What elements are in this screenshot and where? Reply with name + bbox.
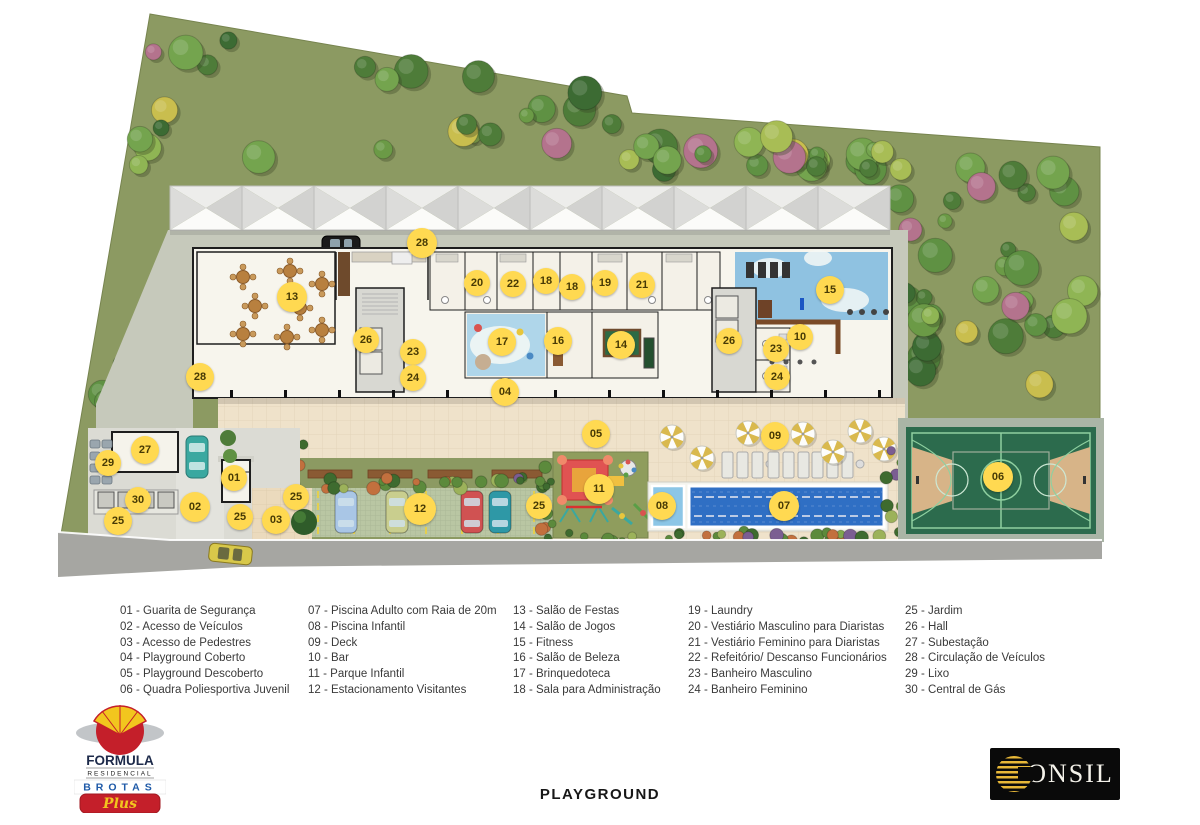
legend-item: 08 - Piscina Infantil [308,620,497,636]
legend-item: 12 - Estacionamento Visitantes [308,683,497,699]
legend-item: 16 - Salão de Beleza [513,651,661,667]
plan-marker-27: 27 [131,436,159,464]
brotas-label: BROTAS [83,782,157,794]
legend: 01 - Guarita de Segurança02 - Acesso de … [0,600,1200,700]
legend-item: 22 - Refeitório/ Descanso Funcionários [688,651,887,667]
plan-marker-25: 25 [227,504,253,530]
plan-marker-05: 05 [582,420,610,448]
plan-marker-24: 24 [400,365,426,391]
plan-marker-30: 30 [125,487,151,513]
consil-c-icon [996,756,1032,792]
plan-marker-08: 08 [648,492,676,520]
legend-item: 17 - Brinquedoteca [513,667,661,683]
consil-wordmark: ONSIL [1027,759,1114,789]
legend-item: 19 - Laundry [688,604,887,620]
legend-item: 10 - Bar [308,651,497,667]
plan-marker-12: 12 [404,493,436,525]
plan-marker-25: 25 [283,484,309,510]
legend-item: 01 - Guarita de Segurança [120,604,289,620]
site-plan: 2813202218181921152623241716142623241004… [0,0,1200,580]
plan-marker-11: 11 [584,474,614,504]
plan-marker-07: 07 [769,491,799,521]
legend-column: 01 - Guarita de Segurança02 - Acesso de … [120,604,289,699]
plan-marker-20: 20 [464,270,490,296]
plan-marker-04: 04 [491,378,519,406]
legend-item: 18 - Sala para Administração [513,683,661,699]
legend-item: 28 - Circulação de Veículos [905,651,1045,667]
plan-marker-19: 19 [592,270,618,296]
legend-item: 23 - Banheiro Masculino [688,667,887,683]
site-plan-page: 2813202218181921152623241716142623241004… [0,0,1200,825]
legend-item: 20 - Vestiário Masculino para Diaristas [688,620,887,636]
plan-marker-13: 13 [277,282,307,312]
plan-marker-02: 02 [180,492,210,522]
legend-item: 27 - Subestação [905,636,1045,652]
plan-marker-17: 17 [488,328,516,356]
formula-brotas-logo: FORMULA RESIDENCIAL BROTAS Plus [74,697,166,813]
plan-marker-28: 28 [407,228,437,258]
plan-marker-03: 03 [262,506,290,534]
legend-item: 26 - Hall [905,620,1045,636]
legend-item: 05 - Playground Descoberto [120,667,289,683]
legend-column: 25 - Jardim26 - Hall27 - Subestação28 - … [905,604,1045,699]
legend-item: 13 - Salão de Festas [513,604,661,620]
legend-item: 15 - Fitness [513,636,661,652]
consil-logo: ONSIL [990,748,1120,800]
plan-marker-23: 23 [400,339,426,365]
plan-marker-25: 25 [104,507,132,535]
plus-label: Plus [102,796,137,812]
plan-marker-14: 14 [607,331,635,359]
legend-item: 09 - Deck [308,636,497,652]
plan-marker-21: 21 [629,272,655,298]
plan-marker-29: 29 [95,450,121,476]
plan-marker-26: 26 [716,328,742,354]
legend-item: 14 - Salão de Jogos [513,620,661,636]
legend-item: 07 - Piscina Adulto com Raia de 20m [308,604,497,620]
legend-item: 04 - Playground Coberto [120,651,289,667]
plan-marker-16: 16 [544,327,572,355]
legend-column: 19 - Laundry20 - Vestiário Masculino par… [688,604,887,699]
plan-marker-18: 18 [559,274,585,300]
legend-item: 21 - Vestiário Feminino para Diaristas [688,636,887,652]
legend-column: 07 - Piscina Adulto com Raia de 20m08 - … [308,604,497,699]
plan-marker-28: 28 [186,363,214,391]
plan-marker-22: 22 [500,271,526,297]
plan-marker-01: 01 [221,465,247,491]
formula-wordmark: FORMULA [86,753,154,768]
plan-marker-23: 23 [763,336,789,362]
marker-layer: 2813202218181921152623241716142623241004… [0,0,1200,580]
plan-marker-26: 26 [353,327,379,353]
plan-marker-06: 06 [983,462,1013,492]
legend-item: 03 - Acesso de Pedestres [120,636,289,652]
legend-item: 02 - Acesso de Veículos [120,620,289,636]
plan-marker-09: 09 [761,422,789,450]
legend-column: 13 - Salão de Festas14 - Salão de Jogos1… [513,604,661,699]
legend-item: 24 - Banheiro Feminino [688,683,887,699]
plan-marker-15: 15 [816,276,844,304]
legend-item: 25 - Jardim [905,604,1045,620]
legend-item: 11 - Parque Infantil [308,667,497,683]
residencial-label: RESIDENCIAL [87,771,152,778]
plan-marker-24: 24 [764,364,790,390]
plan-marker-18: 18 [533,268,559,294]
legend-item: 29 - Lixo [905,667,1045,683]
plan-marker-25: 25 [526,493,552,519]
plan-marker-10: 10 [787,324,813,350]
legend-item: 30 - Central de Gás [905,683,1045,699]
